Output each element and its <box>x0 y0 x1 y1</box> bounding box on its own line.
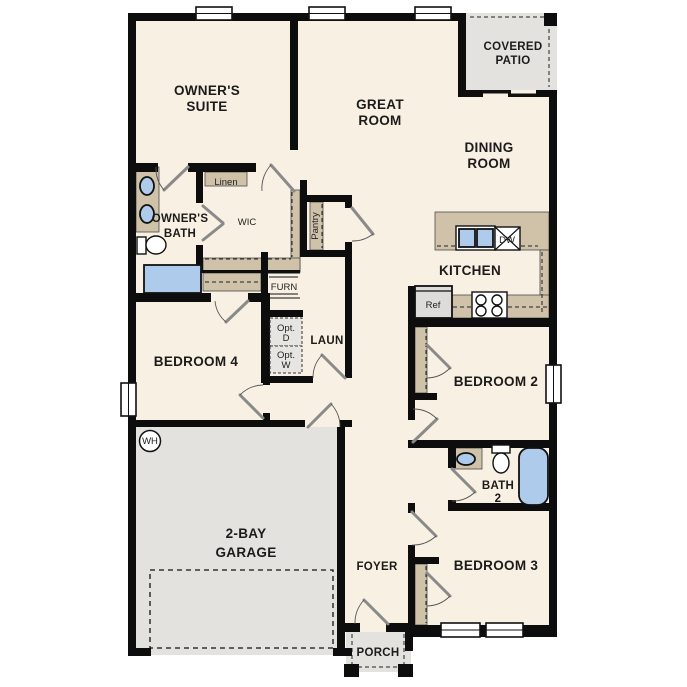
owners-toilet-tank <box>137 237 146 254</box>
label-foyer: FOYER <box>356 561 398 573</box>
label-bedroom3: BEDROOM 3 <box>454 558 539 573</box>
label-ref: Ref <box>426 300 441 311</box>
label-covered-patio-2: PATIO <box>496 55 531 67</box>
label-bedroom4: BEDROOM 4 <box>154 354 239 369</box>
garage-apron <box>151 648 333 655</box>
bedroom4-closet-shelf <box>203 273 261 291</box>
label-bedroom2: BEDROOM 2 <box>454 374 538 389</box>
owners-tub <box>144 265 201 293</box>
floorplan-canvas: OWNER'S SUITE GREAT ROOM COVERED PATIO D… <box>0 0 687 687</box>
patio-slider-panel-1 <box>483 90 511 94</box>
label-dw: DW <box>499 235 515 246</box>
bath2-toilet-tank <box>492 445 510 453</box>
label-owners-bath-1: OWNER'S <box>152 213 209 225</box>
label-owners-suite-2: SUITE <box>186 99 227 114</box>
label-covered-patio-1: COVERED <box>484 41 543 53</box>
label-wic: WIC <box>238 217 257 228</box>
label-bath2-1: BATH <box>482 480 514 492</box>
label-laundry: LAUN <box>310 335 343 347</box>
label-dining-room-1: DINING <box>464 140 513 155</box>
bath2-tub <box>519 448 548 505</box>
label-porch: PORCH <box>356 647 399 659</box>
label-great-room-2: ROOM <box>358 113 401 128</box>
label-opt-d-2: D <box>283 333 290 344</box>
label-linen: Linen <box>214 177 237 188</box>
label-owners-suite-1: OWNER'S <box>174 83 240 98</box>
label-bath2-2: 2 <box>495 493 502 505</box>
label-great-room-1: GREAT <box>356 97 404 112</box>
label-garage-1: 2-BAY <box>226 526 267 541</box>
kitchen-sink-basin-2 <box>477 229 493 247</box>
wic-shelf-bottom <box>203 258 300 272</box>
label-furn: FURN <box>271 282 298 293</box>
bedroom2-closet-shelf <box>415 327 427 393</box>
label-wh: WH <box>142 436 158 447</box>
label-pantry: Pantry <box>310 212 321 240</box>
label-kitchen: KITCHEN <box>439 263 501 278</box>
patio-slider-panel-2 <box>508 94 536 98</box>
label-opt-w-2: W <box>282 360 291 371</box>
label-dining-room-2: ROOM <box>467 156 510 171</box>
bath2-toilet-bowl <box>493 453 509 473</box>
owners-bath-sink-1 <box>140 177 154 195</box>
label-owners-bath-2: BATH <box>164 228 196 240</box>
label-garage-2: GARAGE <box>215 545 276 560</box>
kitchen-sink-basin-1 <box>459 229 475 247</box>
bedroom3-closet-shelf <box>415 564 427 625</box>
bath2-sink <box>457 453 475 465</box>
